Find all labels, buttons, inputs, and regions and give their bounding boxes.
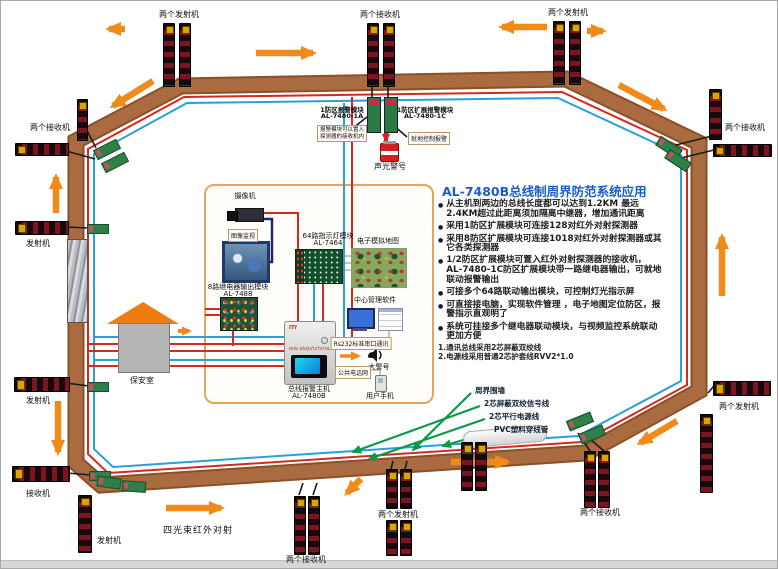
map-label: 电子模拟地图: [357, 236, 399, 246]
ir-tower: [400, 469, 412, 509]
feature-item: 系统可挂接多个继电器联动模块，与视频监控系统联动更加方便: [438, 323, 662, 342]
zone-note-left: 报警模块可以置入 探测器的接收机内: [317, 125, 367, 142]
feature-item: 采用1防区扩展模块可连接128对红外对射探测器: [438, 222, 662, 233]
camera-label: 摄像机: [235, 191, 256, 201]
zone-module-1c-model: AL-7480-1C: [404, 112, 446, 120]
feature-list: 从主机到两边的总线长度都可以达到1.2KM 最远2.4KM超过此距离须加隔离中继…: [438, 200, 662, 344]
monitor-label: 图像监视: [228, 229, 258, 242]
callout-pvc-pipe: PVC塑料穿线管: [494, 424, 548, 435]
wiring-note: 2.电源线采用普通2芯护套线RVV2*1.0: [438, 352, 574, 361]
ir-tower: [709, 89, 722, 140]
stone-pillar: [67, 239, 88, 323]
ir-tower: [553, 21, 565, 85]
pc-icon: [347, 308, 373, 332]
ir-tower: [294, 496, 306, 555]
feature-item: 可接多个64路联动输出模块，可控制灯光指示屏: [438, 288, 662, 299]
alarm-host-icon: ITI ww.alephchina.: [284, 321, 336, 385]
siren-icon: [380, 143, 399, 162]
rs232-label: Rs232标准串口通讯: [331, 337, 392, 350]
callout-signal-line: 2芯屏蔽双绞信号线: [484, 398, 549, 409]
host-brand-logo: ITI: [289, 325, 297, 331]
ir-tower: [163, 23, 175, 87]
ir-tower: [367, 23, 379, 87]
feature-item: 采用8防区扩展模块可连接1018对红外对射探测器或其它各类探测器: [438, 235, 662, 254]
zone-module-1c-icon: [384, 97, 398, 133]
ir-tower: [383, 23, 395, 87]
ir-tower: [386, 520, 398, 556]
phone-icon: [375, 375, 387, 392]
host-screen: [291, 355, 327, 378]
relay-module-icon: [220, 297, 258, 331]
ir-tower: [179, 23, 191, 87]
callout-wall: 周界围墙: [475, 385, 505, 396]
ir-tower: [713, 381, 771, 396]
feature-item: 可直接接电脑，实现软件管理 ，电子地图定位防区，报警指示直观明了: [438, 301, 662, 320]
monitor-icon: [222, 241, 270, 283]
pstn-label: 公共电话网: [335, 366, 371, 379]
map-image: [351, 248, 407, 288]
ir-tower: [584, 451, 596, 508]
feature-item: 从主机到两边的总线长度都可以达到1.2KM 最远2.4KM超过此距离须加隔离中继…: [438, 200, 662, 219]
perimeter-system-diagram: 保安室 1防区报警模块 AL-7480-1A 1防区扩展报警模块 AL-7480…: [0, 0, 778, 569]
host-model: AL-7480B: [292, 392, 326, 400]
ir-tower: [598, 451, 610, 508]
zone-module-1a-icon: [367, 97, 381, 133]
ir-tower: [12, 466, 70, 482]
ir-tower: [308, 496, 320, 555]
label-top-receivers: 两个接收机: [360, 9, 400, 20]
software-label: 中心管理软件: [354, 295, 396, 305]
ir-tower: [77, 99, 88, 141]
label-left-transmitter-1: 发射机: [26, 238, 50, 249]
label-bottom-transmitters: 两个发射机: [378, 509, 418, 520]
callout-power-line: 2芯平行电源线: [489, 411, 539, 422]
label-top-right-transmitters: 两个发射机: [548, 7, 588, 18]
label-left-corner-receivers: 两个接收机: [30, 122, 70, 133]
label-right-top-receivers: 两个接收机: [725, 122, 765, 133]
siren-label: 声光警号: [374, 161, 406, 172]
relay-module-model: AL-7488: [224, 290, 253, 298]
phone-label: 用户手机: [366, 391, 394, 401]
label-bottom-receivers: 两个接收机: [286, 554, 326, 565]
ir-tower: [78, 495, 92, 553]
ir-tower: [386, 469, 398, 509]
security-room-label: 保安室: [130, 375, 154, 386]
ir-tower: [475, 442, 487, 491]
zone-module-1a-model: AL-7480-1A: [321, 112, 363, 120]
ir-tower: [713, 144, 772, 157]
label-top-left-transmitters: 两个发射机: [159, 9, 199, 20]
zone-note-right: 就地控制报警: [408, 132, 450, 145]
security-room-roof-icon: [107, 302, 179, 324]
horn-label: 大警号: [369, 362, 390, 372]
security-room-icon: [118, 323, 170, 373]
label-four-beam-ir: 四光束红外对射: [163, 523, 233, 536]
feature-item: 1/2防区扩展模块可置入红外对射探测器的接收机，AL-7480-1C防区扩展模块…: [438, 256, 662, 285]
ir-tower: [15, 143, 69, 156]
label-right-transmitters: 两个发射机: [719, 401, 759, 412]
page-title: AL-7480B总线制周界防范系统应用: [442, 181, 647, 200]
pcb-module: [122, 480, 147, 493]
label-left-receiver: 接收机: [26, 488, 50, 499]
camera-icon: [227, 206, 263, 224]
led-module-icon: [295, 249, 343, 284]
label-bottom-transmitter: 发射机: [97, 535, 121, 546]
wiring-notes: 1.通讯总线采用2芯屏蔽双绞线 2.电源线采用普通2芯护套线RVV2*1.0: [438, 343, 574, 361]
led-module-model: AL-7464: [314, 239, 343, 247]
ir-tower: [461, 442, 473, 491]
label-left-transmitter-2: 发射机: [26, 395, 50, 406]
ir-tower: [569, 21, 581, 85]
host-indicator: [321, 337, 328, 344]
ir-tower: [700, 414, 713, 493]
wiring-note: 1.通讯总线采用2芯屏蔽双绞线: [438, 343, 574, 352]
ir-tower: [14, 377, 70, 392]
label-bottom-right-receivers: 两个接收机: [580, 507, 620, 518]
ir-tower: [15, 221, 69, 235]
software-window-icon: [378, 308, 403, 331]
ir-tower: [400, 520, 412, 556]
pcb-module: [87, 224, 109, 234]
pcb-module: [87, 382, 109, 392]
host-watermark: ww.alephchina.: [285, 346, 335, 352]
